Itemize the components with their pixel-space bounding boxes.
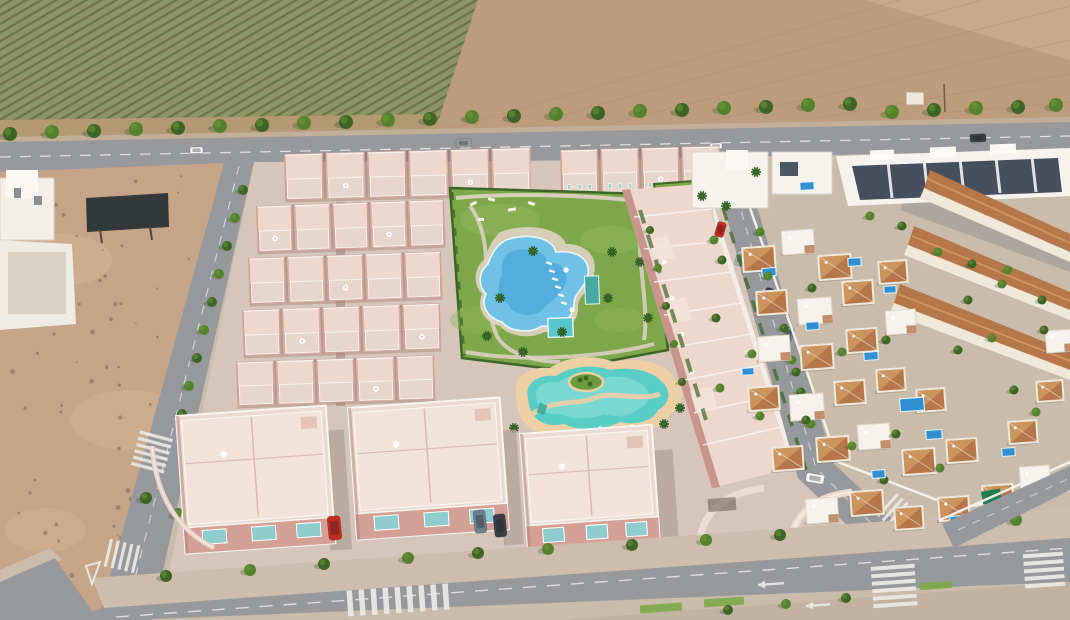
van-dark [970,134,986,143]
villa [1033,379,1065,404]
villa [839,279,875,307]
townhouse-row [256,199,446,254]
villa [899,447,937,477]
pool [800,182,814,191]
villa [755,335,791,363]
garage-opening [708,497,737,512]
villa [855,423,891,451]
umbrella [563,267,568,272]
villa [745,385,781,413]
villa [779,229,815,256]
island-bush [588,382,593,387]
pool [585,276,600,304]
villa [831,379,867,407]
villa-block [520,425,660,552]
villa-window [34,196,42,205]
field-hut [906,92,924,105]
dirt-patch [5,508,85,552]
white-villa-tower [726,150,748,170]
townhouse-row [242,303,442,358]
villa-window [14,188,21,198]
pool [900,397,925,412]
villa [815,253,853,282]
pool [884,286,896,294]
van-grey [456,139,471,148]
villa [847,489,885,518]
villa [769,445,805,473]
villa [803,497,839,525]
pool [864,352,879,361]
roof-box [930,147,956,158]
island-bush [584,376,589,381]
villa [891,505,925,532]
villa [883,309,917,336]
pool [806,322,820,331]
car-dark [493,513,507,537]
villa [873,367,907,394]
billboard [86,193,169,232]
car-red [327,515,342,540]
navy-accent [780,162,798,176]
pool [848,258,862,267]
aerial-scene [0,0,1070,620]
pool [872,470,886,479]
umbrella [670,296,675,301]
pool [742,368,754,376]
villa [753,289,789,317]
townhouse-row [248,251,443,306]
pool [926,429,943,439]
umbrella [569,307,574,312]
utility-pole [944,84,945,112]
roof-box [990,144,1016,155]
car-white [190,147,203,154]
pool [1002,448,1016,457]
shade-sail [478,218,484,221]
villa [797,343,835,372]
roof-box [870,150,894,161]
villa [875,259,909,286]
lawn-light [594,308,646,332]
villa-block [176,406,335,554]
umbrella [662,260,667,265]
villa [813,435,851,464]
island-bush [578,378,583,383]
car-blue [473,509,487,533]
villa [843,327,879,355]
aerial-photo: Aerial render of a coastal residential d… [0,0,1070,620]
villa [1005,419,1039,446]
white-villa-tower [6,170,38,198]
villa-courtyard [8,252,66,314]
townhouse-row [236,355,436,408]
villa [943,437,979,465]
